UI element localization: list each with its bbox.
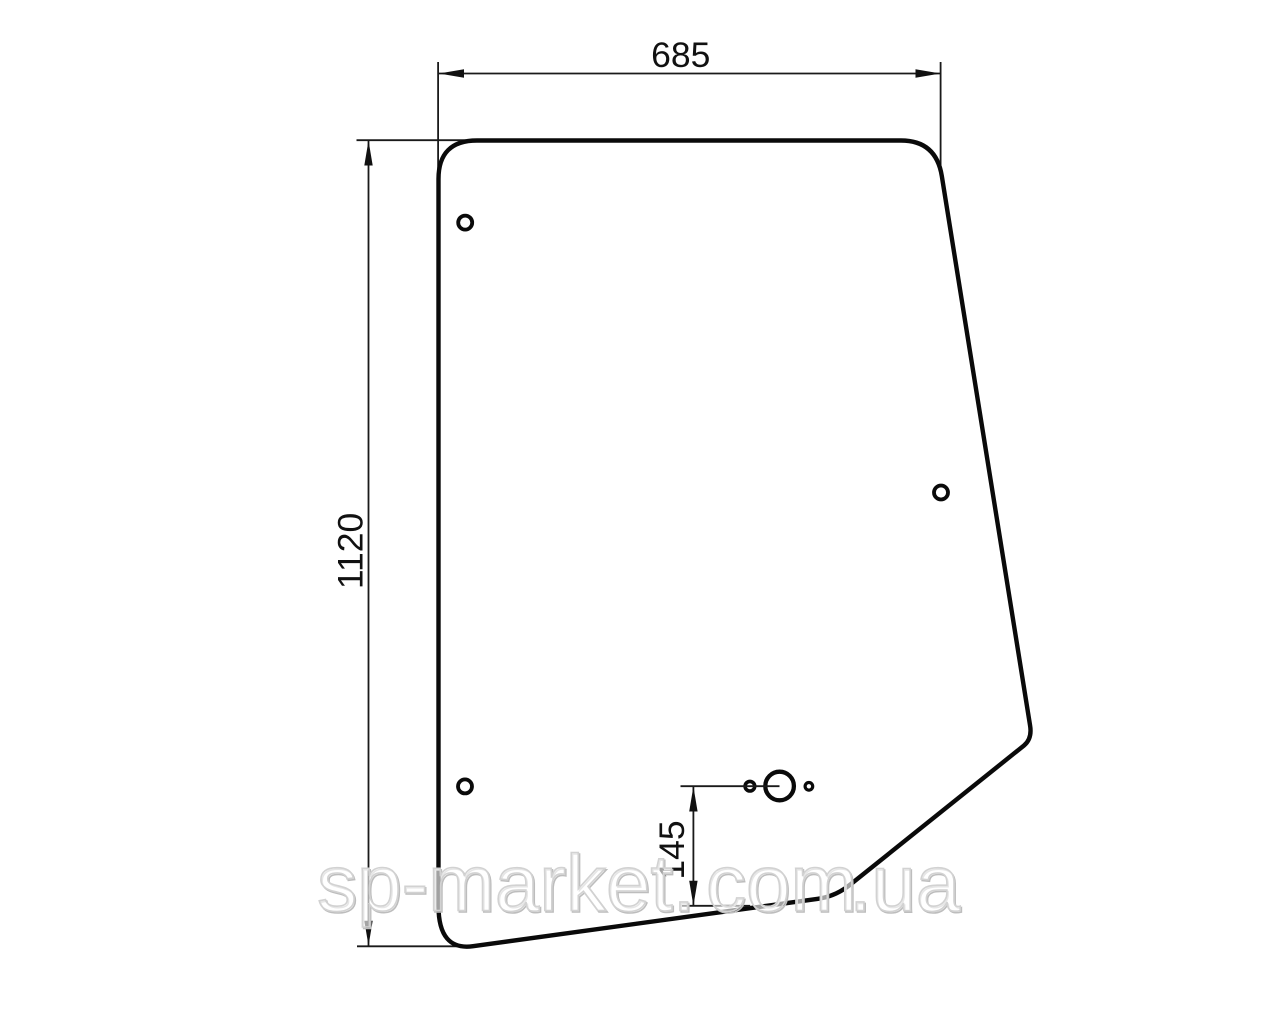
svg-text:1120: 1120 — [331, 513, 371, 589]
svg-text:sp-market.com.ua: sp-market.com.ua — [317, 839, 961, 928]
svg-text:685: 685 — [651, 35, 710, 75]
